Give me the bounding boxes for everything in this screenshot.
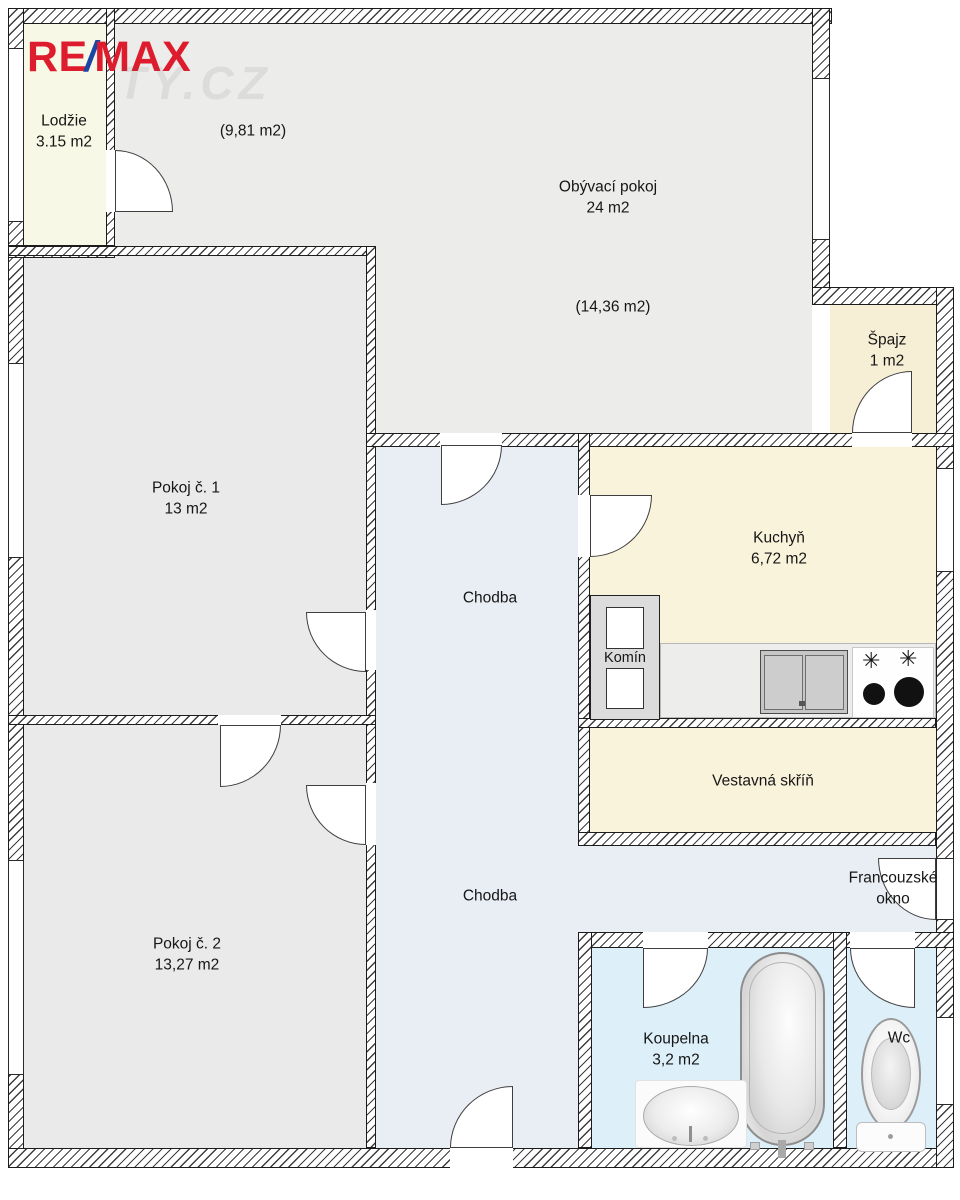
wall-koupelna-wc <box>833 932 847 1148</box>
label-chodba-upper: Chodba <box>463 587 517 608</box>
toilet-tank-button <box>888 1134 893 1139</box>
gap-pokoj1-pokoj2-door <box>218 715 281 725</box>
label-chodba-lower: Chodba <box>463 885 517 906</box>
washbasin-tap-dot-left <box>672 1136 677 1141</box>
window-obyvaci-right <box>812 78 830 240</box>
label-francouzske-okno: Francouzské okno <box>832 868 954 911</box>
floor-plan: ✳ ✳ Lodžie 3.15 m2 Obývací pokoj 24 m2 (… <box>0 0 960 1200</box>
stove-burner-plate-large <box>894 677 924 707</box>
wall-obyvaci-pokoj1 <box>8 246 376 256</box>
window-pokoj1-left <box>8 363 24 558</box>
label-koupelna: Koupelna 3,2 m2 <box>643 1029 709 1072</box>
window-lodzie-left <box>8 48 24 222</box>
gap-kuchyn-door <box>578 495 590 557</box>
wall-koupelna-left <box>578 932 592 1148</box>
room-obyvaci-pokoj-lower <box>376 247 812 433</box>
window-kuchyn-right <box>936 468 954 572</box>
wall-pokoj1-pokoj2 <box>8 715 376 725</box>
window-wc-right <box>936 1017 954 1105</box>
label-obyvaci-part2: (14,36 m2) <box>576 296 651 317</box>
room-chodba-column <box>376 445 578 1148</box>
label-pokoj-1: Pokoj č. 1 13 m2 <box>152 478 220 521</box>
kitchen-cabinet-handle <box>799 701 805 706</box>
label-vestavna-skrin: Vestavná skříň <box>712 770 814 791</box>
label-spajz: Špajz 1 m2 <box>868 330 907 373</box>
washbasin-tap-dot-right <box>703 1136 708 1141</box>
toilet-bowl-inner <box>871 1038 911 1110</box>
label-kuchyn: Kuchyň 6,72 m2 <box>751 528 807 571</box>
gap-entrance-door <box>450 1148 513 1168</box>
kitchen-cabinet-door-left <box>764 655 803 710</box>
chimney-flue-bottom <box>606 668 644 709</box>
wall-outer-top <box>10 8 832 24</box>
remax-logo-max: MAX <box>94 33 191 81</box>
label-obyvaci-pokoj: Obývací pokoj 24 m2 <box>559 177 657 220</box>
gap-spajz-door <box>852 433 912 447</box>
label-lodzie: Lodžie 3.15 m2 <box>36 111 92 154</box>
gap-wc-door <box>850 932 915 948</box>
window-pokoj2-left <box>8 860 24 1075</box>
gap-lodzie-door <box>106 150 115 212</box>
washbasin-faucet <box>689 1126 692 1142</box>
label-pokoj-2: Pokoj č. 2 13,27 m2 <box>153 934 221 977</box>
wall-vestavna-bottom <box>578 832 936 846</box>
chimney-flue-top <box>606 607 644 649</box>
bathtub-drain <box>778 1140 786 1158</box>
label-wc: Wc <box>888 1027 910 1048</box>
label-obyvaci-part1: (9,81 m2) <box>220 120 286 141</box>
wall-chodba-left <box>366 246 376 1148</box>
stove-burner-plate-small <box>863 683 885 705</box>
bathtub-foot-left <box>750 1142 760 1150</box>
gap-pokoj1-door <box>366 610 376 670</box>
kitchen-cabinet-door-right <box>805 655 844 710</box>
remax-logo: RE/MAX <box>27 33 191 82</box>
gap-koupelna-door <box>643 932 708 948</box>
label-komin: Komín <box>604 648 646 668</box>
stove-burner-gas-right-icon: ✳ <box>899 648 917 670</box>
gap-pokoj2-door <box>366 783 376 845</box>
wall-spajz-top <box>812 287 954 305</box>
bathtub-foot-right <box>804 1142 814 1150</box>
stove-burner-gas-left-icon: ✳ <box>862 650 880 672</box>
remax-logo-re: RE <box>27 33 88 81</box>
bathtub-inner <box>749 962 816 1134</box>
